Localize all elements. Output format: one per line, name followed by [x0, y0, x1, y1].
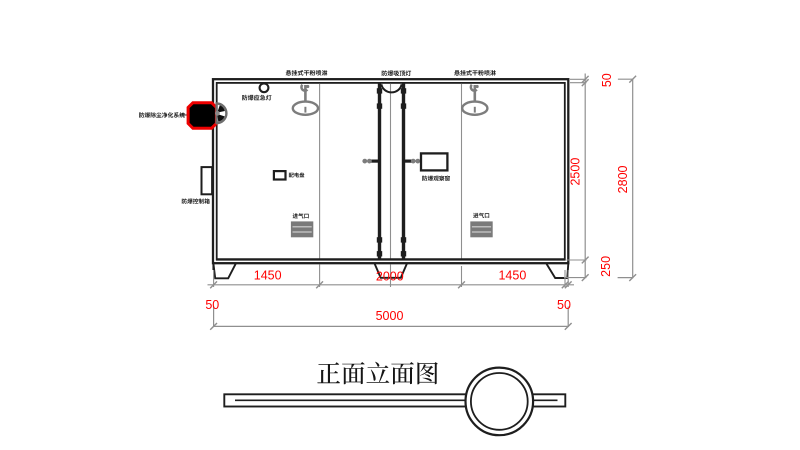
- svg-text:250: 250: [599, 256, 613, 277]
- svg-text:50: 50: [557, 298, 571, 312]
- svg-text:50: 50: [600, 73, 614, 87]
- svg-text:2000: 2000: [376, 270, 404, 284]
- svg-text:2500: 2500: [569, 158, 583, 186]
- svg-text:50: 50: [205, 298, 219, 312]
- svg-text:2800: 2800: [616, 165, 630, 193]
- svg-text:1450: 1450: [254, 269, 282, 283]
- svg-text:1450: 1450: [498, 269, 526, 283]
- svg-text:5000: 5000: [376, 309, 404, 323]
